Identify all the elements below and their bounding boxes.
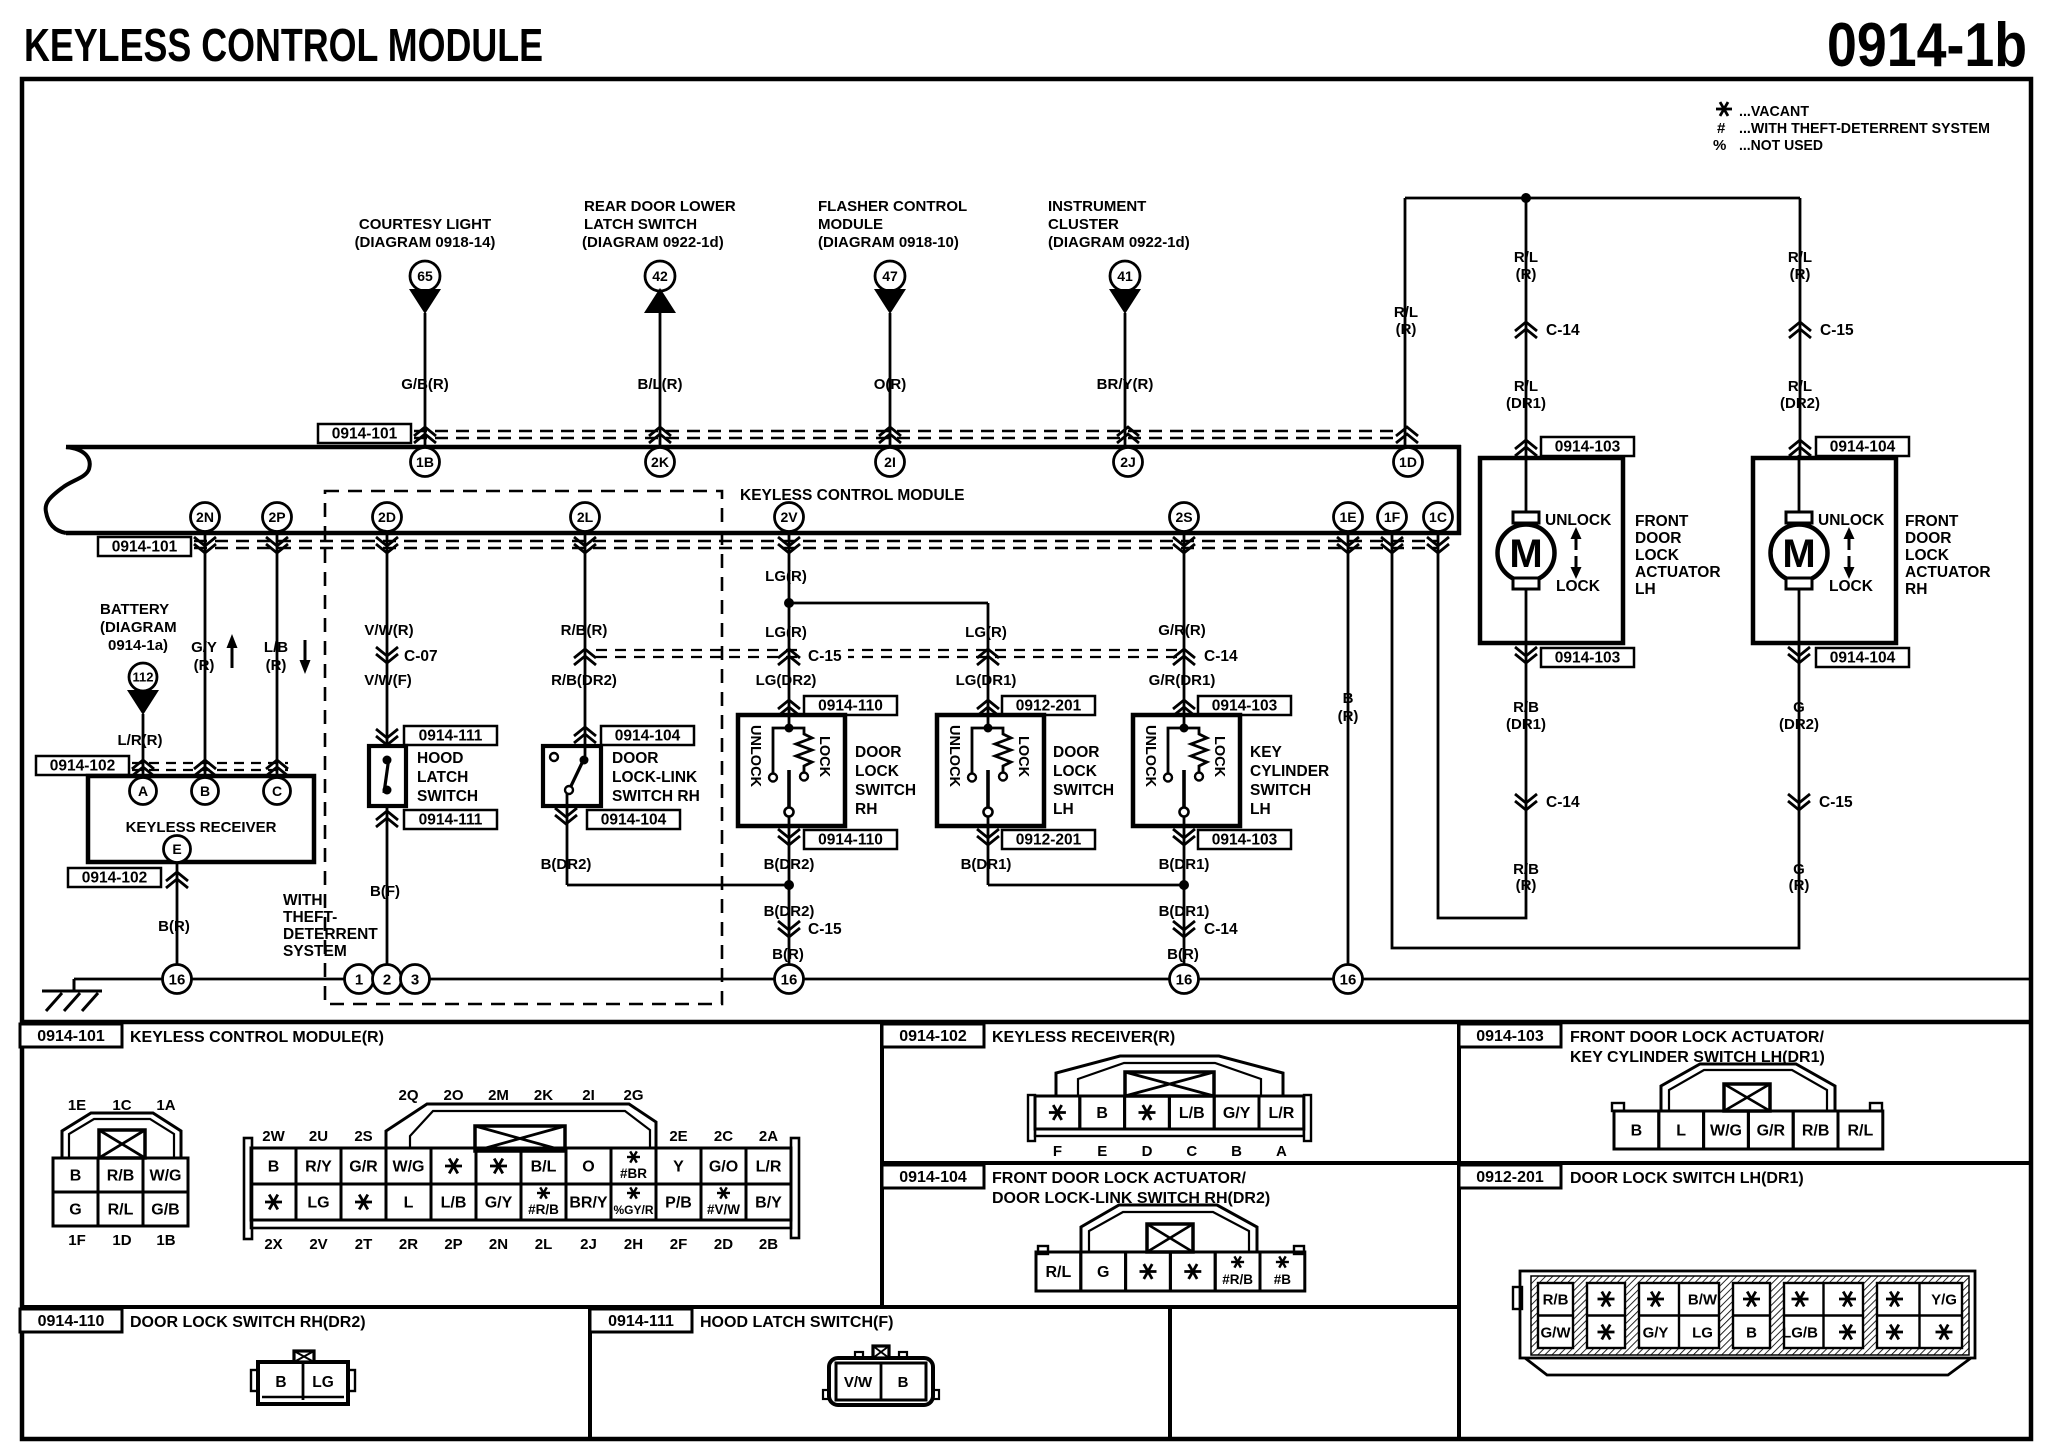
- svg-text:2A: 2A: [759, 1128, 778, 1145]
- svg-text:1B: 1B: [416, 454, 434, 470]
- svg-text:C-14: C-14: [1546, 794, 1580, 811]
- svg-text:0914-102: 0914-102: [82, 870, 148, 887]
- svg-text:C-15: C-15: [808, 648, 842, 665]
- svg-text:L: L: [1676, 1123, 1686, 1140]
- svg-text:INSTRUMENT: INSTRUMENT: [1048, 198, 1146, 215]
- svg-text:UNLOCK: UNLOCK: [1545, 512, 1612, 529]
- svg-text:DOOR: DOOR: [1053, 744, 1100, 761]
- svg-text:...WITH THEFT-DETERRENT SYSTEM: ...WITH THEFT-DETERRENT SYSTEM: [1739, 120, 1990, 137]
- svg-text:...VACANT: ...VACANT: [1739, 103, 1809, 120]
- svg-text:(R): (R): [1790, 266, 1811, 283]
- svg-text:1F: 1F: [1384, 509, 1401, 525]
- svg-text:R/B: R/B: [1513, 861, 1539, 878]
- svg-text:LOCK: LOCK: [1829, 578, 1874, 595]
- svg-text:C-15: C-15: [1819, 794, 1853, 811]
- svg-text:0914-104: 0914-104: [1830, 650, 1896, 667]
- svg-text:LOCK: LOCK: [816, 736, 832, 778]
- svg-text:HOOD LATCH SWITCH(F): HOOD LATCH SWITCH(F): [700, 1314, 893, 1331]
- svg-text:2K: 2K: [651, 454, 669, 470]
- svg-text:R/B(R): R/B(R): [561, 622, 608, 639]
- svg-text:(DR1): (DR1): [1506, 395, 1546, 412]
- svg-text:(DIAGRAM 0922-1d): (DIAGRAM 0922-1d): [582, 234, 724, 251]
- svg-text:0914-110: 0914-110: [818, 832, 883, 849]
- svg-text:W/G: W/G: [393, 1159, 425, 1176]
- svg-text:1D: 1D: [1399, 454, 1417, 470]
- svg-text:2K: 2K: [534, 1087, 553, 1104]
- svg-text:LOCK: LOCK: [1635, 547, 1680, 564]
- svg-text:BR/Y: BR/Y: [569, 1195, 608, 1212]
- svg-text:KEY: KEY: [1250, 744, 1283, 761]
- svg-text:2Q: 2Q: [398, 1087, 418, 1104]
- svg-text:ACTUATOR: ACTUATOR: [1635, 564, 1721, 581]
- svg-text:DOOR: DOOR: [612, 750, 659, 767]
- svg-text:2O: 2O: [443, 1087, 463, 1104]
- svg-text:G/R: G/R: [1757, 1123, 1786, 1140]
- svg-text:FRONT DOOR LOCK ACTUATOR/: FRONT DOOR LOCK ACTUATOR/: [1570, 1029, 1824, 1046]
- svg-text:WITH: WITH: [283, 892, 323, 909]
- svg-text:G: G: [69, 1202, 81, 1219]
- svg-text:FLASHER CONTROL: FLASHER CONTROL: [818, 198, 967, 215]
- svg-text:0914-103: 0914-103: [1555, 439, 1621, 456]
- svg-text:RH: RH: [855, 801, 877, 818]
- svg-text:DOOR: DOOR: [855, 744, 902, 761]
- svg-text:#B: #B: [1274, 1272, 1292, 1287]
- svg-text:W/G: W/G: [1710, 1123, 1742, 1140]
- svg-text:0914-110: 0914-110: [38, 1313, 105, 1330]
- svg-text:#R/B: #R/B: [1222, 1272, 1253, 1287]
- svg-text:R/B: R/B: [1513, 699, 1539, 716]
- svg-text:L/B: L/B: [1179, 1105, 1205, 1122]
- svg-text:R/L: R/L: [1788, 249, 1812, 266]
- svg-text:(R): (R): [194, 657, 215, 674]
- svg-text:0914-103: 0914-103: [1476, 1028, 1544, 1045]
- svg-text:G: G: [1097, 1264, 1109, 1281]
- svg-text:L/R(R): L/R(R): [118, 732, 163, 749]
- svg-text:RH: RH: [1905, 581, 1927, 598]
- svg-text:E: E: [1097, 1143, 1107, 1160]
- svg-text:C: C: [1186, 1143, 1197, 1160]
- svg-text:B(DR1): B(DR1): [961, 856, 1012, 873]
- svg-text:D: D: [1142, 1143, 1153, 1160]
- svg-text:16: 16: [1176, 971, 1193, 988]
- svg-text:0914-111: 0914-111: [419, 728, 483, 745]
- svg-text:LG(DR2): LG(DR2): [756, 672, 817, 689]
- svg-text:LG(DR1): LG(DR1): [956, 672, 1017, 689]
- svg-text:B: B: [1631, 1123, 1643, 1140]
- svg-text:R/B: R/B: [107, 1168, 135, 1185]
- svg-text:KEYLESS CONTROL MODULE(R): KEYLESS CONTROL MODULE(R): [130, 1029, 384, 1046]
- svg-text:3: 3: [411, 971, 419, 988]
- svg-text:LG(R): LG(R): [965, 624, 1007, 641]
- svg-text:R/B: R/B: [1543, 1292, 1569, 1309]
- svg-text:2U: 2U: [309, 1128, 328, 1145]
- svg-text:B(DR2): B(DR2): [764, 903, 815, 920]
- svg-text:LOCK: LOCK: [1905, 547, 1950, 564]
- svg-text:Y/G: Y/G: [1931, 1292, 1957, 1309]
- svg-text:2D: 2D: [378, 509, 396, 525]
- svg-text:0914-111: 0914-111: [419, 812, 483, 829]
- svg-text:112: 112: [133, 670, 154, 685]
- svg-text:1C: 1C: [1429, 509, 1447, 525]
- svg-text:BATTERY: BATTERY: [100, 601, 169, 618]
- svg-text:B/Y: B/Y: [755, 1195, 782, 1212]
- svg-text:B(F): B(F): [370, 883, 400, 900]
- svg-text:2V: 2V: [309, 1236, 327, 1253]
- svg-text:...NOT USED: ...NOT USED: [1739, 137, 1823, 154]
- svg-text:G/R(R): G/R(R): [1158, 622, 1206, 639]
- svg-text:G/B(R): G/B(R): [401, 376, 449, 393]
- svg-text:2F: 2F: [670, 1236, 688, 1253]
- svg-text:LH: LH: [1250, 801, 1271, 818]
- svg-text:F: F: [1053, 1143, 1062, 1160]
- svg-text:BR/Y(R): BR/Y(R): [1097, 376, 1154, 393]
- svg-text:B: B: [200, 783, 210, 799]
- svg-text:1A: 1A: [156, 1097, 175, 1114]
- svg-text:2V: 2V: [780, 509, 798, 525]
- svg-text:FRONT DOOR LOCK ACTUATOR/: FRONT DOOR LOCK ACTUATOR/: [992, 1170, 1246, 1187]
- svg-text:2J: 2J: [580, 1236, 597, 1253]
- svg-text:HOOD: HOOD: [417, 750, 464, 767]
- svg-text:SWITCH: SWITCH: [1250, 782, 1311, 799]
- svg-text:L: L: [404, 1195, 414, 1212]
- svg-text:0914-101: 0914-101: [332, 426, 398, 443]
- svg-text:MODULE: MODULE: [818, 216, 883, 233]
- svg-text:C: C: [272, 783, 282, 799]
- svg-text:G/Y: G/Y: [1643, 1325, 1669, 1342]
- svg-text:G/W: G/W: [1541, 1325, 1572, 1342]
- svg-text:1E: 1E: [1339, 509, 1356, 525]
- svg-text:C-15: C-15: [808, 921, 842, 938]
- svg-text:#: #: [1717, 120, 1726, 137]
- svg-text:B(R): B(R): [772, 946, 804, 963]
- svg-text:0914-104: 0914-104: [899, 1169, 967, 1186]
- svg-text:L/B: L/B: [264, 639, 288, 656]
- svg-text:LG: LG: [307, 1195, 329, 1212]
- svg-text:2W: 2W: [262, 1128, 285, 1145]
- svg-text:C-07: C-07: [404, 648, 438, 665]
- svg-text:0914-1b: 0914-1b: [1827, 11, 2027, 80]
- svg-text:LOCK: LOCK: [1015, 736, 1031, 778]
- svg-text:FRONT: FRONT: [1905, 513, 1959, 530]
- svg-text:LOCK: LOCK: [1556, 578, 1601, 595]
- svg-text:G/Y: G/Y: [1223, 1105, 1251, 1122]
- svg-text:65: 65: [417, 268, 433, 284]
- svg-text:0914-104: 0914-104: [601, 812, 667, 829]
- svg-text:(R): (R): [266, 657, 287, 674]
- svg-text:CYLINDER: CYLINDER: [1250, 763, 1329, 780]
- svg-text:B(DR1): B(DR1): [1159, 903, 1210, 920]
- svg-text:COURTESY LIGHT: COURTESY LIGHT: [359, 216, 491, 233]
- svg-text:R/L: R/L: [1394, 304, 1418, 321]
- svg-text:B(DR2): B(DR2): [541, 856, 592, 873]
- svg-text:0914-110: 0914-110: [818, 698, 883, 715]
- svg-text:M: M: [1509, 532, 1542, 576]
- svg-text:G/R(DR1): G/R(DR1): [1149, 672, 1216, 689]
- svg-text:SWITCH: SWITCH: [1053, 782, 1114, 799]
- svg-text:G: G: [1793, 861, 1805, 878]
- svg-text:0914-102: 0914-102: [50, 758, 116, 775]
- svg-text:LOCK: LOCK: [1053, 763, 1098, 780]
- svg-text:2X: 2X: [264, 1236, 282, 1253]
- svg-text:0914-1a): 0914-1a): [108, 637, 168, 654]
- svg-text:2P: 2P: [268, 509, 285, 525]
- svg-text:G/Y: G/Y: [191, 639, 217, 656]
- svg-text:1D: 1D: [112, 1232, 131, 1249]
- svg-text:2S: 2S: [354, 1128, 372, 1145]
- svg-text:B/L: B/L: [531, 1159, 557, 1176]
- svg-text:UNLOCK: UNLOCK: [1818, 512, 1885, 529]
- svg-text:(DIAGRAM 0922-1d): (DIAGRAM 0922-1d): [1048, 234, 1190, 251]
- svg-text:UNLOCK: UNLOCK: [1142, 725, 1158, 788]
- svg-text:A: A: [138, 783, 148, 799]
- svg-text:C-15: C-15: [1820, 322, 1854, 339]
- svg-text:C-14: C-14: [1204, 921, 1238, 938]
- svg-text:2M: 2M: [488, 1087, 509, 1104]
- svg-text:0914-103: 0914-103: [1212, 832, 1278, 849]
- svg-text:DETERRENT: DETERRENT: [283, 926, 378, 943]
- svg-text:L/B: L/B: [441, 1195, 467, 1212]
- svg-text:B(DR1): B(DR1): [1159, 856, 1210, 873]
- svg-text:B: B: [1231, 1143, 1242, 1160]
- svg-text:R/B(DR2): R/B(DR2): [551, 672, 617, 689]
- svg-text:2S: 2S: [1175, 509, 1192, 525]
- svg-text:THEFT-: THEFT-: [283, 909, 337, 926]
- svg-text:0914-101: 0914-101: [37, 1028, 105, 1045]
- svg-text:DOOR LOCK SWITCH RH(DR2): DOOR LOCK SWITCH RH(DR2): [130, 1314, 366, 1331]
- svg-text:16: 16: [1340, 971, 1357, 988]
- svg-text:LOCK-LINK: LOCK-LINK: [612, 769, 698, 786]
- svg-text:ACTUATOR: ACTUATOR: [1905, 564, 1991, 581]
- svg-text:(R): (R): [1516, 877, 1537, 894]
- svg-text:UNLOCK: UNLOCK: [946, 725, 962, 788]
- svg-text:G/Y: G/Y: [485, 1195, 513, 1212]
- svg-text:G/O: G/O: [709, 1159, 738, 1176]
- svg-text:%GY/R: %GY/R: [613, 1203, 653, 1217]
- svg-text:A: A: [1276, 1143, 1287, 1160]
- svg-text:B(DR2): B(DR2): [764, 856, 815, 873]
- svg-text:B: B: [268, 1159, 280, 1176]
- svg-text:REAR DOOR LOWER: REAR DOOR LOWER: [584, 198, 736, 215]
- svg-text:LH: LH: [1635, 581, 1656, 598]
- svg-text:2N: 2N: [196, 509, 214, 525]
- svg-text:V/W(R): V/W(R): [364, 622, 413, 639]
- svg-text:B: B: [898, 1374, 909, 1391]
- svg-text:SWITCH: SWITCH: [855, 782, 916, 799]
- svg-text:#BR: #BR: [620, 1166, 647, 1181]
- svg-text:L/R: L/R: [756, 1159, 782, 1176]
- svg-text:2G: 2G: [623, 1087, 643, 1104]
- svg-text:1E: 1E: [68, 1097, 86, 1114]
- svg-text:G/B: G/B: [151, 1202, 179, 1219]
- svg-text:LG(R): LG(R): [765, 624, 807, 641]
- svg-text:KEYLESS RECEIVER: KEYLESS RECEIVER: [126, 819, 277, 836]
- svg-text:DOOR: DOOR: [1905, 530, 1952, 547]
- svg-text:O: O: [582, 1159, 594, 1176]
- svg-text:E: E: [172, 841, 181, 857]
- svg-text:2L: 2L: [535, 1236, 553, 1253]
- svg-text:R/L: R/L: [1046, 1264, 1072, 1281]
- svg-text:B: B: [1746, 1325, 1757, 1342]
- svg-text:Y: Y: [673, 1159, 684, 1176]
- svg-text:R/L: R/L: [1848, 1123, 1874, 1140]
- svg-text:KEYLESS CONTROL MODULE: KEYLESS CONTROL MODULE: [740, 487, 964, 504]
- svg-text:#V/W: #V/W: [707, 1202, 740, 1217]
- svg-text:KEYLESS RECEIVER(R): KEYLESS RECEIVER(R): [992, 1029, 1175, 1046]
- svg-text:P/B: P/B: [665, 1195, 692, 1212]
- svg-text:2B: 2B: [759, 1236, 778, 1253]
- svg-text:1C: 1C: [112, 1097, 131, 1114]
- svg-text:SWITCH: SWITCH: [417, 788, 478, 805]
- svg-text:UNLOCK: UNLOCK: [747, 725, 763, 788]
- svg-text:SWITCH RH: SWITCH RH: [612, 788, 700, 805]
- svg-text:0914-103: 0914-103: [1212, 698, 1278, 715]
- svg-text:G/R: G/R: [349, 1159, 378, 1176]
- svg-text:2J: 2J: [1120, 454, 1136, 470]
- svg-text:W/G: W/G: [150, 1168, 182, 1185]
- svg-text:CLUSTER: CLUSTER: [1048, 216, 1119, 233]
- svg-text:2C: 2C: [714, 1128, 733, 1145]
- svg-text:2N: 2N: [489, 1236, 508, 1253]
- svg-text:R/L: R/L: [1788, 378, 1812, 395]
- svg-text:2T: 2T: [355, 1236, 373, 1253]
- svg-text:2D: 2D: [714, 1236, 733, 1253]
- svg-text:16: 16: [169, 971, 186, 988]
- svg-text:(DIAGRAM 0918-14): (DIAGRAM 0918-14): [355, 234, 496, 251]
- svg-text:KEYLESS CONTROL MODULE: KEYLESS CONTROL MODULE: [24, 19, 543, 71]
- svg-text:R/L: R/L: [1514, 249, 1538, 266]
- svg-text:2H: 2H: [624, 1236, 643, 1253]
- svg-text:L/R: L/R: [1269, 1105, 1295, 1122]
- svg-text:LG/B: LG/B: [1782, 1325, 1818, 1342]
- svg-text:B(R): B(R): [1167, 946, 1199, 963]
- svg-text:DOOR: DOOR: [1635, 530, 1682, 547]
- svg-text:LG: LG: [312, 1374, 334, 1391]
- svg-text:2: 2: [383, 971, 391, 988]
- svg-text:(DR2): (DR2): [1779, 716, 1819, 733]
- svg-text:V/W(F): V/W(F): [364, 672, 411, 689]
- svg-text:B: B: [70, 1168, 82, 1185]
- svg-text:(R): (R): [1338, 708, 1359, 725]
- svg-text:%: %: [1713, 137, 1726, 154]
- svg-text:LOCK: LOCK: [855, 763, 900, 780]
- svg-text:0914-101: 0914-101: [112, 539, 178, 556]
- svg-text:41: 41: [1117, 268, 1133, 284]
- svg-text:(R): (R): [1789, 877, 1810, 894]
- svg-text:DOOR LOCK SWITCH LH(DR1): DOOR LOCK SWITCH LH(DR1): [1570, 1170, 1804, 1187]
- svg-text:R/Y: R/Y: [305, 1159, 332, 1176]
- svg-text:16: 16: [781, 971, 798, 988]
- svg-text:(R): (R): [1396, 321, 1417, 338]
- svg-text:2L: 2L: [577, 509, 594, 525]
- svg-text:V/W: V/W: [844, 1374, 873, 1391]
- svg-text:2R: 2R: [399, 1236, 418, 1253]
- svg-text:G: G: [1793, 699, 1805, 716]
- svg-text:1: 1: [355, 971, 363, 988]
- svg-text:0912-201: 0912-201: [1476, 1169, 1544, 1186]
- svg-text:LATCH: LATCH: [417, 769, 468, 786]
- svg-text:B(R): B(R): [158, 918, 190, 935]
- svg-text:(R): (R): [1516, 266, 1537, 283]
- svg-text:(DR1): (DR1): [1506, 716, 1546, 733]
- svg-text:LG: LG: [1692, 1325, 1713, 1342]
- svg-text:B: B: [1343, 690, 1354, 707]
- svg-text:LH: LH: [1053, 801, 1074, 818]
- svg-text:42: 42: [652, 268, 668, 284]
- svg-text:R/L: R/L: [1514, 378, 1538, 395]
- svg-text:0912-201: 0912-201: [1016, 832, 1082, 849]
- svg-text:2P: 2P: [444, 1236, 462, 1253]
- svg-text:LOCK: LOCK: [1211, 736, 1227, 778]
- svg-text:R/L: R/L: [108, 1202, 134, 1219]
- svg-text:(DR2): (DR2): [1780, 395, 1820, 412]
- svg-text:0914-111: 0914-111: [608, 1313, 674, 1330]
- svg-text:B/L(R): B/L(R): [638, 376, 683, 393]
- svg-text:0914-102: 0914-102: [899, 1028, 967, 1045]
- svg-text:0914-103: 0914-103: [1555, 650, 1621, 667]
- svg-text:0912-201: 0912-201: [1016, 698, 1082, 715]
- svg-text:LATCH SWITCH: LATCH SWITCH: [584, 216, 697, 233]
- svg-text:R/B: R/B: [1802, 1123, 1830, 1140]
- svg-text:2E: 2E: [669, 1128, 687, 1145]
- svg-text:0914-104: 0914-104: [615, 728, 681, 745]
- svg-text:B/W: B/W: [1688, 1292, 1718, 1309]
- svg-text:(DIAGRAM 0918-10): (DIAGRAM 0918-10): [818, 234, 959, 251]
- svg-text:LG(R): LG(R): [765, 568, 807, 585]
- svg-text:1F: 1F: [68, 1232, 86, 1249]
- svg-text:0914-104: 0914-104: [1830, 439, 1896, 456]
- svg-text:B: B: [1096, 1105, 1108, 1122]
- svg-text:47: 47: [882, 268, 898, 284]
- svg-text:2I: 2I: [582, 1087, 595, 1104]
- svg-text:FRONT: FRONT: [1635, 513, 1689, 530]
- svg-text:C-14: C-14: [1204, 648, 1238, 665]
- svg-text:SYSTEM: SYSTEM: [283, 943, 347, 960]
- svg-text:1B: 1B: [156, 1232, 175, 1249]
- svg-text:#R/B: #R/B: [528, 1202, 559, 1217]
- svg-text:O(R): O(R): [874, 376, 907, 393]
- svg-text:B: B: [275, 1374, 286, 1391]
- svg-text:C-14: C-14: [1546, 322, 1580, 339]
- svg-text:2I: 2I: [884, 454, 896, 470]
- svg-text:M: M: [1782, 532, 1815, 576]
- svg-text:(DIAGRAM: (DIAGRAM: [100, 619, 177, 636]
